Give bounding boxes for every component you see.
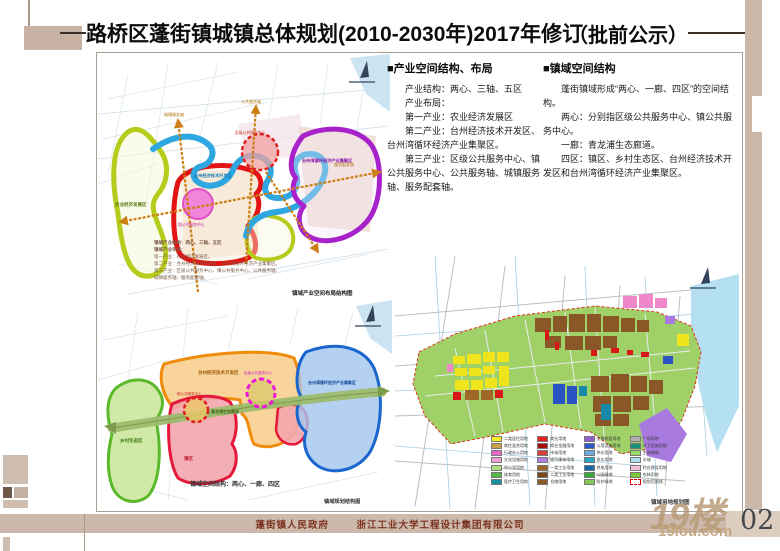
legend-swatch [537, 443, 548, 449]
legend-label: 供水用地 [597, 450, 613, 456]
svg-text:第三产业：区级公共服务中心、镇公共服务中心、公共服务轴、: 第三产业：区级公共服务中心、镇公共服务中心、公共服务轴、 [154, 267, 280, 274]
svg-text:第一产业：农业经济发展区。: 第一产业：农业经济发展区。 [154, 253, 213, 260]
legend-swatch [630, 443, 641, 449]
structure-inner-caption: 镇域空间结构：两心、一廊、四区 [190, 480, 280, 488]
bullet-icon: ■ [387, 63, 394, 75]
legend-label: 二类居住用地 [504, 436, 528, 442]
legend-label: 一类工业用地 [550, 465, 574, 471]
legend-item: 交通枢纽用地 [584, 436, 625, 442]
legend-swatch [584, 443, 595, 449]
content-frame: 城镇服务轴 公共服务轴 服务配套轴 农业经济发展区 台州经济技术开发区 台州湾循… [96, 52, 743, 512]
legend-label: 商住混合用地 [504, 443, 528, 449]
section-line: 第一产业：农业经济发展区 [387, 111, 541, 125]
legend-swatch [537, 465, 548, 471]
bullet-icon: ■ [543, 63, 550, 75]
legend-swatch [584, 457, 595, 463]
bottom-left-square-dark [3, 487, 12, 498]
legend-label: 环卫设施用地 [643, 443, 667, 449]
legend-label: 供电用地 [597, 465, 613, 471]
legend-item: 防护绿地 [584, 479, 625, 485]
mixed-blocks [465, 390, 493, 400]
svg-text:第二产业：台州经济技术开发区、台州湾循环经济产业集聚区。: 第二产业：台州经济技术开发区、台州湾循环经济产业集聚区。 [154, 260, 280, 267]
legend-item: 市场用地 [537, 450, 578, 456]
legend-label: 商业金融用地 [550, 443, 574, 449]
legend-item: 中小学用地 [491, 465, 532, 471]
section-line: 四区：镇区、乡村生态区、台州经济技术开发区和台州湾循环经济产业集聚区。 [543, 153, 735, 181]
legend-item: 二类居住用地 [491, 436, 532, 442]
legend-swatch [537, 479, 548, 485]
legend-item: 生态绿地 [630, 450, 671, 456]
footer-credits: 蓬街镇人民政府 浙江工业大学工程设计集团有限公司 [180, 517, 600, 531]
legend-item: 水域 [630, 457, 671, 463]
legend-label: 广场用地 [643, 436, 659, 442]
legend-item: 规划范围线 [630, 479, 671, 485]
section-line: 产业布局： [387, 97, 541, 111]
legend-swatch [584, 472, 595, 478]
industry-map-caption: 镇域产业空间布局结构图 [292, 289, 353, 297]
section-line: 产业结构：两心、三轴、五区 [387, 83, 541, 97]
town-structure-map: 乡村生态区 台州经济技术开发区 台州湾循环经济产业集聚区 镇区 青龙浦生态廊道 … [98, 300, 392, 509]
right-accent-stripe [745, 0, 762, 510]
industry-structure-map: 城镇服务轴 公共服务轴 服务配套轴 农业经济发展区 台州经济技术开发区 台州湾循… [98, 54, 390, 300]
circular-zone-label: 台州湾循环经济产业集聚区 [302, 157, 353, 164]
axis-label: 公共服务轴 [241, 98, 261, 104]
section-line: 第三产业：区级公共服务中心、镇公共服务中心、公共服务轴、城镇服务轴、服务配套轴。 [387, 153, 541, 195]
legend-label: 防护绿地 [597, 479, 613, 485]
legend-item: 文化设施用地 [491, 457, 532, 463]
legend-item: 广场用地 [630, 436, 671, 442]
circular-zone-ring [291, 129, 379, 241]
legend-label: 生态绿地 [643, 450, 659, 456]
page-number: 02 [740, 505, 774, 536]
circular-zone-label: 台州湾循环经济产业集聚区 [308, 379, 356, 385]
structure-map-caption: 镇域规划结构图 [324, 497, 360, 505]
legend-item: 二类工业用地 [537, 472, 578, 478]
legend-swatch [537, 472, 548, 478]
legend-swatch [491, 443, 502, 449]
section-town-structure: ■镇域空间结构 蓬街镇域形成“两心、一廊、四区”的空间结构。 两心：分别指区级公… [543, 61, 735, 181]
legend-swatch [630, 479, 641, 485]
svg-text:镇域产业布局：: 镇域产业布局： [154, 246, 186, 253]
title-rule-right [688, 32, 745, 34]
legend-swatch [584, 450, 595, 456]
legend-label: 二类工业用地 [550, 472, 574, 478]
bottom-left-square [3, 455, 28, 484]
district-center-label: 区级公共服务中心 [244, 370, 272, 375]
legend-label: 医疗卫生用地 [504, 479, 528, 485]
corner-accent-square [24, 26, 82, 50]
legend-swatch [630, 450, 641, 456]
bottom-left-square [14, 487, 28, 498]
landuse-legend: 二类居住用地商住混合用地行政办公用地文化设施用地中小学用地体育用地医疗卫生用地商… [491, 436, 671, 486]
legend-label: 文化设施用地 [504, 457, 528, 463]
legend-item: 农林用地 [630, 472, 671, 478]
legend-label: 排水用地 [597, 457, 613, 463]
legend-swatch [584, 436, 595, 442]
legend-label: 娱乐康体用地 [550, 457, 574, 463]
legend-swatch [584, 479, 595, 485]
legend-item: 体育用地 [491, 472, 532, 478]
agri-zone-label: 农业经济发展区 [114, 201, 147, 208]
legend-label: 中小学用地 [504, 465, 524, 471]
plan-poster-page: 路桥区蓬街镇城镇总体规划(2010-2030年)2017年修订 （批前公示） [0, 0, 780, 551]
district-center-circle [247, 379, 275, 407]
legend-item: 商业用地 [537, 436, 578, 442]
legend-label: 交通枢纽用地 [597, 436, 621, 442]
legend-label: 行政办公用地 [504, 450, 528, 456]
legend-swatch [630, 436, 641, 442]
legend-item: 商业金融用地 [537, 443, 578, 449]
page-title: 路桥区蓬街镇城镇总体规划(2010-2030年)2017年修订 [86, 18, 583, 48]
legend-item: 公园绿地 [584, 472, 625, 478]
legend-swatch [537, 457, 548, 463]
section-line: 第二产业：台州经济技术开发区、台州湾循环经济产业集聚区。 [387, 125, 541, 153]
footer-design-company: 浙江工业大学工程设计集团有限公司 [356, 521, 524, 531]
section-line: 两心：分别指区级公共服务中心、镇公共服务中心。 [543, 111, 735, 139]
legend-item: 村庄建设用地 [630, 465, 671, 471]
legend-label: 农林用地 [643, 472, 659, 478]
bottom-left-square [3, 500, 28, 508]
circular-zone [297, 346, 380, 470]
legend-item: 供电用地 [584, 465, 625, 471]
legend-label: 公园绿地 [597, 472, 613, 478]
legend-swatch [630, 457, 641, 463]
bottom-divider-line [84, 514, 85, 551]
legend-label: 规划范围线 [643, 479, 663, 485]
legend-item: 一类工业用地 [537, 465, 578, 471]
town-zone-label: 镇区 [184, 455, 193, 462]
legend-item: 医疗卫生用地 [491, 479, 532, 485]
town-center-label: 镇公共服务中心 [177, 391, 202, 396]
legend-item: 仓储用地 [537, 479, 578, 485]
frame-top-line [28, 0, 30, 26]
legend-label: 公用设施用地 [597, 443, 621, 449]
legend-swatch [491, 472, 502, 478]
bottom-left-square [3, 537, 10, 551]
legend-swatch [630, 472, 641, 478]
legend-swatch [491, 479, 502, 485]
section-industry-structure: ■产业空间结构、布局 产业结构：两心、三轴、五区 产业布局： 第一产业：农业经济… [387, 61, 541, 195]
legend-item: 供水用地 [584, 450, 625, 456]
legend-swatch [491, 436, 502, 442]
town-center-label: 镇公共服务中心 [178, 222, 205, 227]
19lou-watermark-url: 19lou.com [658, 523, 732, 540]
legend-label: 商业用地 [550, 436, 566, 442]
legend-label: 水域 [643, 457, 651, 463]
district-center-circle [242, 134, 278, 170]
section-line: 蓬街镇域形成“两心、一廊、四区”的空间结构。 [543, 83, 735, 111]
legend-swatch [491, 465, 502, 471]
legend-item: 行政办公用地 [491, 450, 532, 456]
title-rule-left [60, 32, 86, 34]
section-heading: ■产业空间结构、布局 [387, 61, 541, 78]
legend-swatch [537, 436, 548, 442]
legend-item: 排水用地 [584, 457, 625, 463]
corridor-label: 青龙浦生态廊道 [211, 408, 239, 414]
town-center-circle [184, 398, 208, 422]
legend-label: 仓储用地 [550, 479, 566, 485]
legend-item: 商住混合用地 [491, 443, 532, 449]
svg-text:城镇服务轴、服务配套轴。: 城镇服务轴、服务配套轴。 [154, 274, 208, 281]
svg-text:镇域产业结构：两心、三轴、五区: 镇域产业结构：两心、三轴、五区 [154, 239, 222, 246]
legend-label: 市场用地 [550, 450, 566, 456]
legend-item: 环卫设施用地 [630, 443, 671, 449]
publicity-notice: （批前公示） [568, 19, 688, 48]
tech-zone-label: 台州经济技术开发区 [194, 172, 233, 179]
water-area [350, 54, 390, 112]
legend-swatch [584, 465, 595, 471]
legend-swatch [630, 465, 641, 471]
legend-item: 娱乐康体用地 [537, 457, 578, 463]
legend-label: 村庄建设用地 [643, 465, 667, 471]
legend-label: 体育用地 [504, 472, 520, 478]
legend-swatch [537, 450, 548, 456]
water-area [356, 300, 392, 354]
legend-swatch [491, 450, 502, 456]
right-stripe-notch [752, 96, 762, 132]
rural-zone-label: 乡村生态区 [120, 437, 143, 444]
tech-zone-label: 台州经济技术开发区 [198, 369, 239, 376]
legend-item: 公用设施用地 [584, 443, 625, 449]
legend-swatch [491, 457, 502, 463]
footer-government: 蓬街镇人民政府 [256, 521, 330, 531]
district-center-label: 区级公共服务中心 [235, 130, 266, 135]
section-heading: ■镇域空间结构 [543, 61, 735, 78]
section-line: 一廊：青龙浦生态廊道。 [543, 139, 735, 153]
axis-label: 城镇服务轴 [164, 111, 184, 117]
